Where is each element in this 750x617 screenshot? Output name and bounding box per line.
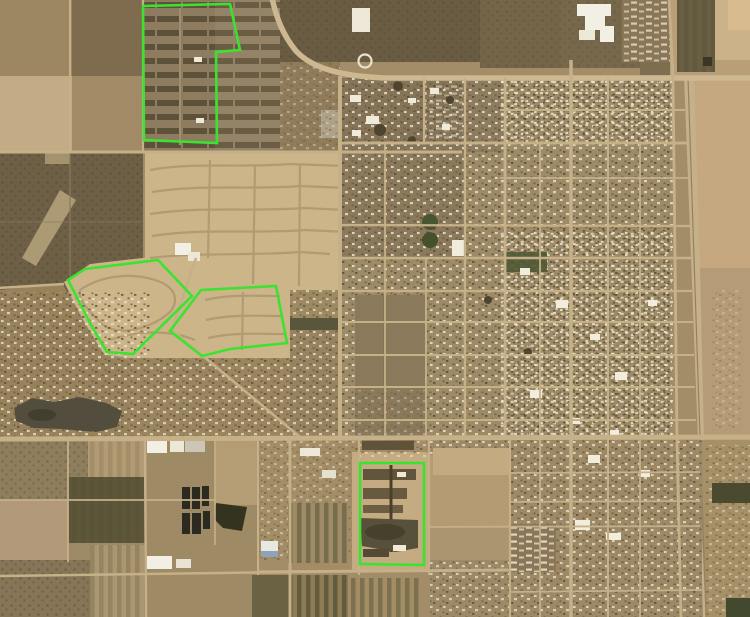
satellite-image: [0, 0, 750, 617]
white-compound-building: [352, 8, 370, 32]
tree-row: [712, 483, 750, 503]
south-neighborhood: [128, 358, 290, 437]
west-neighborhood: [0, 283, 150, 437]
farm-checkerboard: [0, 0, 143, 152]
white-building-speck: [194, 57, 202, 62]
ballfield: [422, 214, 438, 230]
desert-east: [694, 78, 750, 268]
north-subdivision: [143, 0, 280, 152]
south-subdivision: [352, 437, 430, 572]
white-building-speck: [397, 472, 406, 477]
white-building-speck: [393, 545, 406, 551]
satellite-map-view: [0, 0, 750, 617]
dark-structure: [703, 57, 712, 66]
southwest-agriculture: [0, 437, 260, 617]
ballfield: [422, 232, 438, 248]
main-road-south: [0, 437, 750, 439]
blue-roof-building: [261, 551, 278, 557]
tree-row: [726, 598, 750, 617]
warehouse-roof: [261, 541, 278, 551]
white-building-speck: [196, 118, 204, 123]
